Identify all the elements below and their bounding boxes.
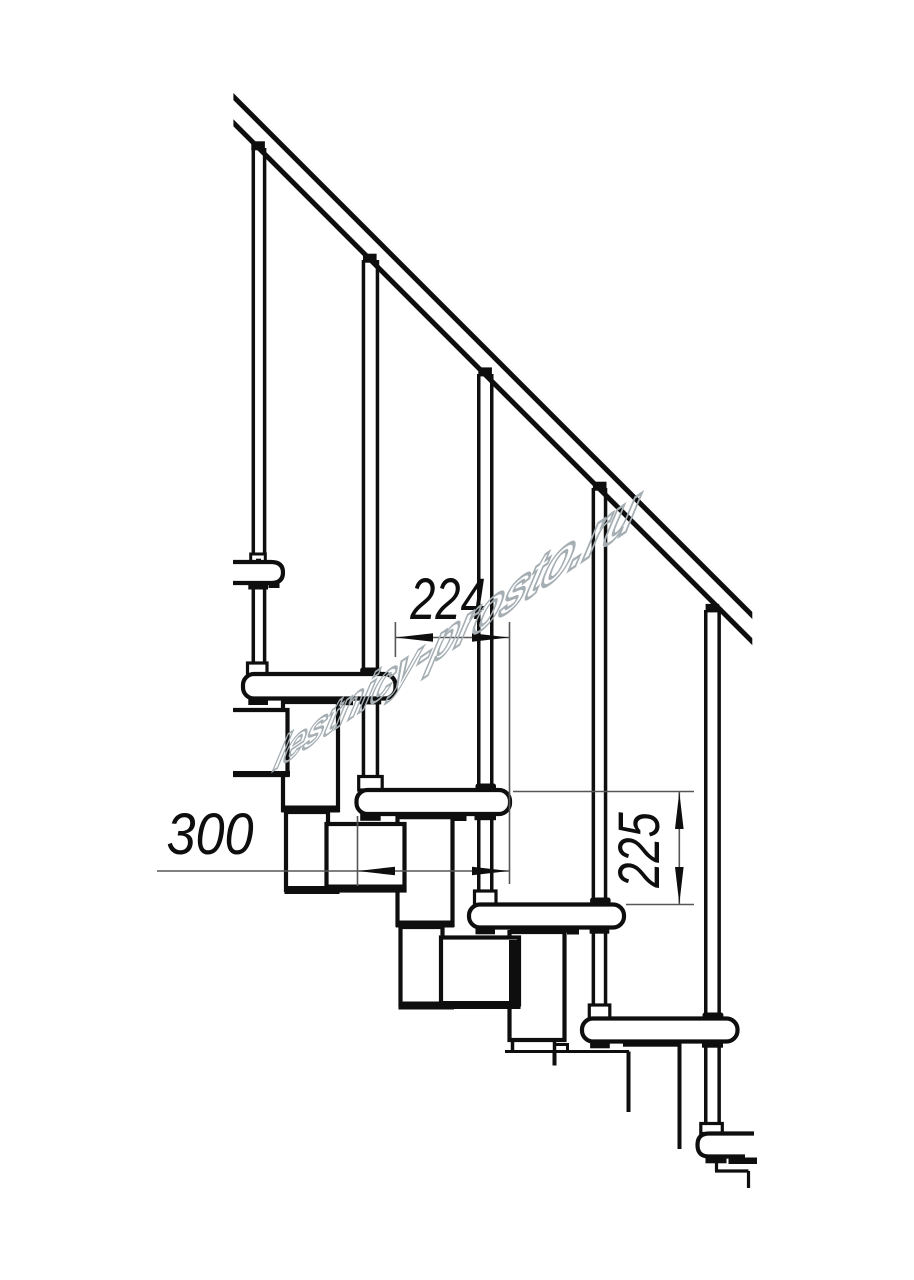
svg-text:225: 225 [608,811,673,888]
svg-text:300: 300 [166,801,253,866]
